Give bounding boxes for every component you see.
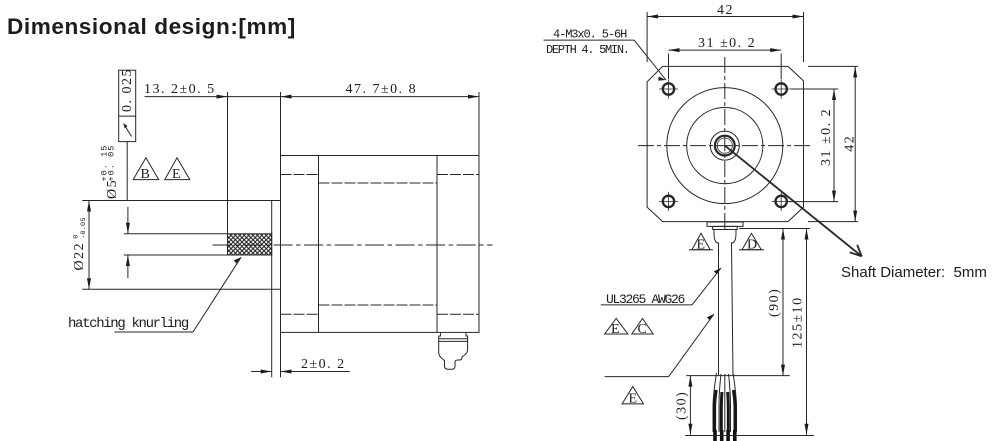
svg-text:E: E xyxy=(697,238,707,253)
svg-text:47. 7±0. 8: 47. 7±0. 8 xyxy=(346,82,418,97)
svg-text:125±10: 125±10 xyxy=(791,296,806,348)
svg-text:DEPTH 4. 5MIN.: DEPTH 4. 5MIN. xyxy=(546,43,629,57)
svg-text:C: C xyxy=(638,322,649,337)
svg-text:Ø22: Ø22 xyxy=(72,242,87,271)
svg-text:B: B xyxy=(141,167,152,182)
svg-text:31 ±0. 2: 31 ±0. 2 xyxy=(698,36,756,51)
svg-text:E: E xyxy=(629,392,639,407)
svg-text:42: 42 xyxy=(843,135,858,152)
svg-text:2±0. 2: 2±0. 2 xyxy=(301,357,346,372)
svg-text:-0.05: -0.05 xyxy=(80,217,88,238)
svg-text:E: E xyxy=(611,322,621,337)
svg-text:13. 2±0. 5: 13. 2±0. 5 xyxy=(144,82,216,97)
svg-text:+0. 05: +0. 05 xyxy=(107,145,117,182)
svg-text:hatching knurling: hatching knurling xyxy=(68,316,189,332)
svg-text:(30): (30) xyxy=(675,391,690,420)
svg-text:42: 42 xyxy=(717,3,734,18)
svg-text:4-M3x0. 5-6H: 4-M3x0. 5-6H xyxy=(553,28,627,42)
svg-text:Shaft Diameter: 5mm: Shaft Diameter: 5mm xyxy=(841,264,987,281)
svg-text:E: E xyxy=(172,167,182,182)
svg-text:(90): (90) xyxy=(767,288,782,317)
svg-text:0. 025: 0. 025 xyxy=(120,68,135,112)
svg-text:31 ±0. 2: 31 ±0. 2 xyxy=(819,108,834,166)
svg-text:Dimensional design:[mm]: Dimensional design:[mm] xyxy=(7,14,296,39)
svg-text:D: D xyxy=(747,238,759,253)
